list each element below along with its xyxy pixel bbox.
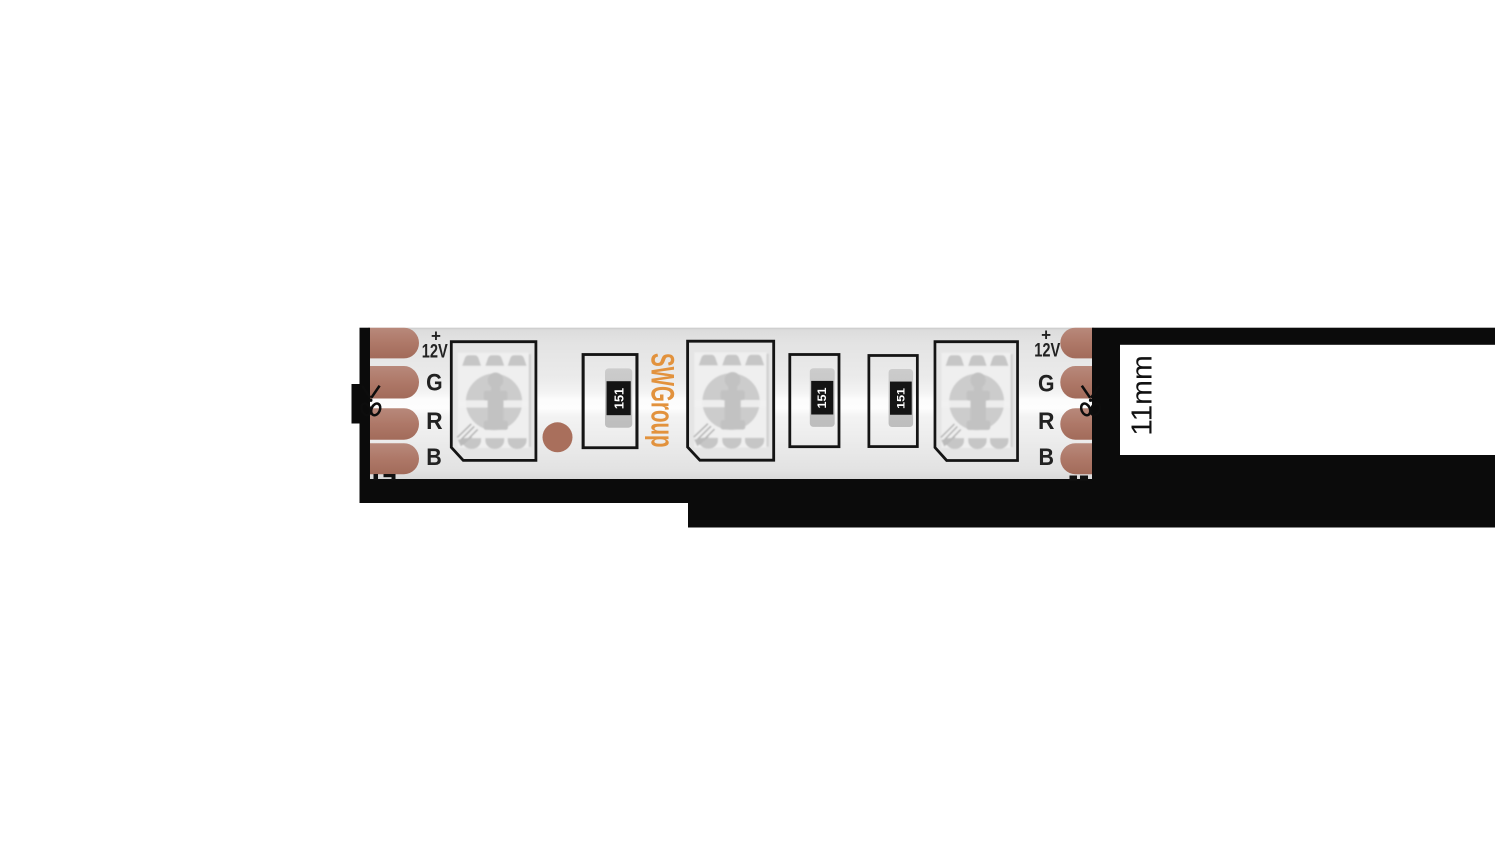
svg-text:12V: 12V bbox=[422, 341, 448, 362]
svg-text:G: G bbox=[426, 369, 443, 396]
svg-text:R: R bbox=[426, 408, 443, 435]
svg-text:R: R bbox=[1038, 408, 1055, 435]
svg-text:12V: 12V bbox=[1034, 341, 1060, 362]
svg-text:SWGroup: SWGroup bbox=[645, 353, 681, 448]
svg-text:B: B bbox=[1038, 444, 1054, 471]
svg-text:G: G bbox=[1038, 371, 1055, 398]
svg-text:11mm: 11mm bbox=[1127, 355, 1159, 436]
svg-text:B: B bbox=[426, 444, 442, 471]
